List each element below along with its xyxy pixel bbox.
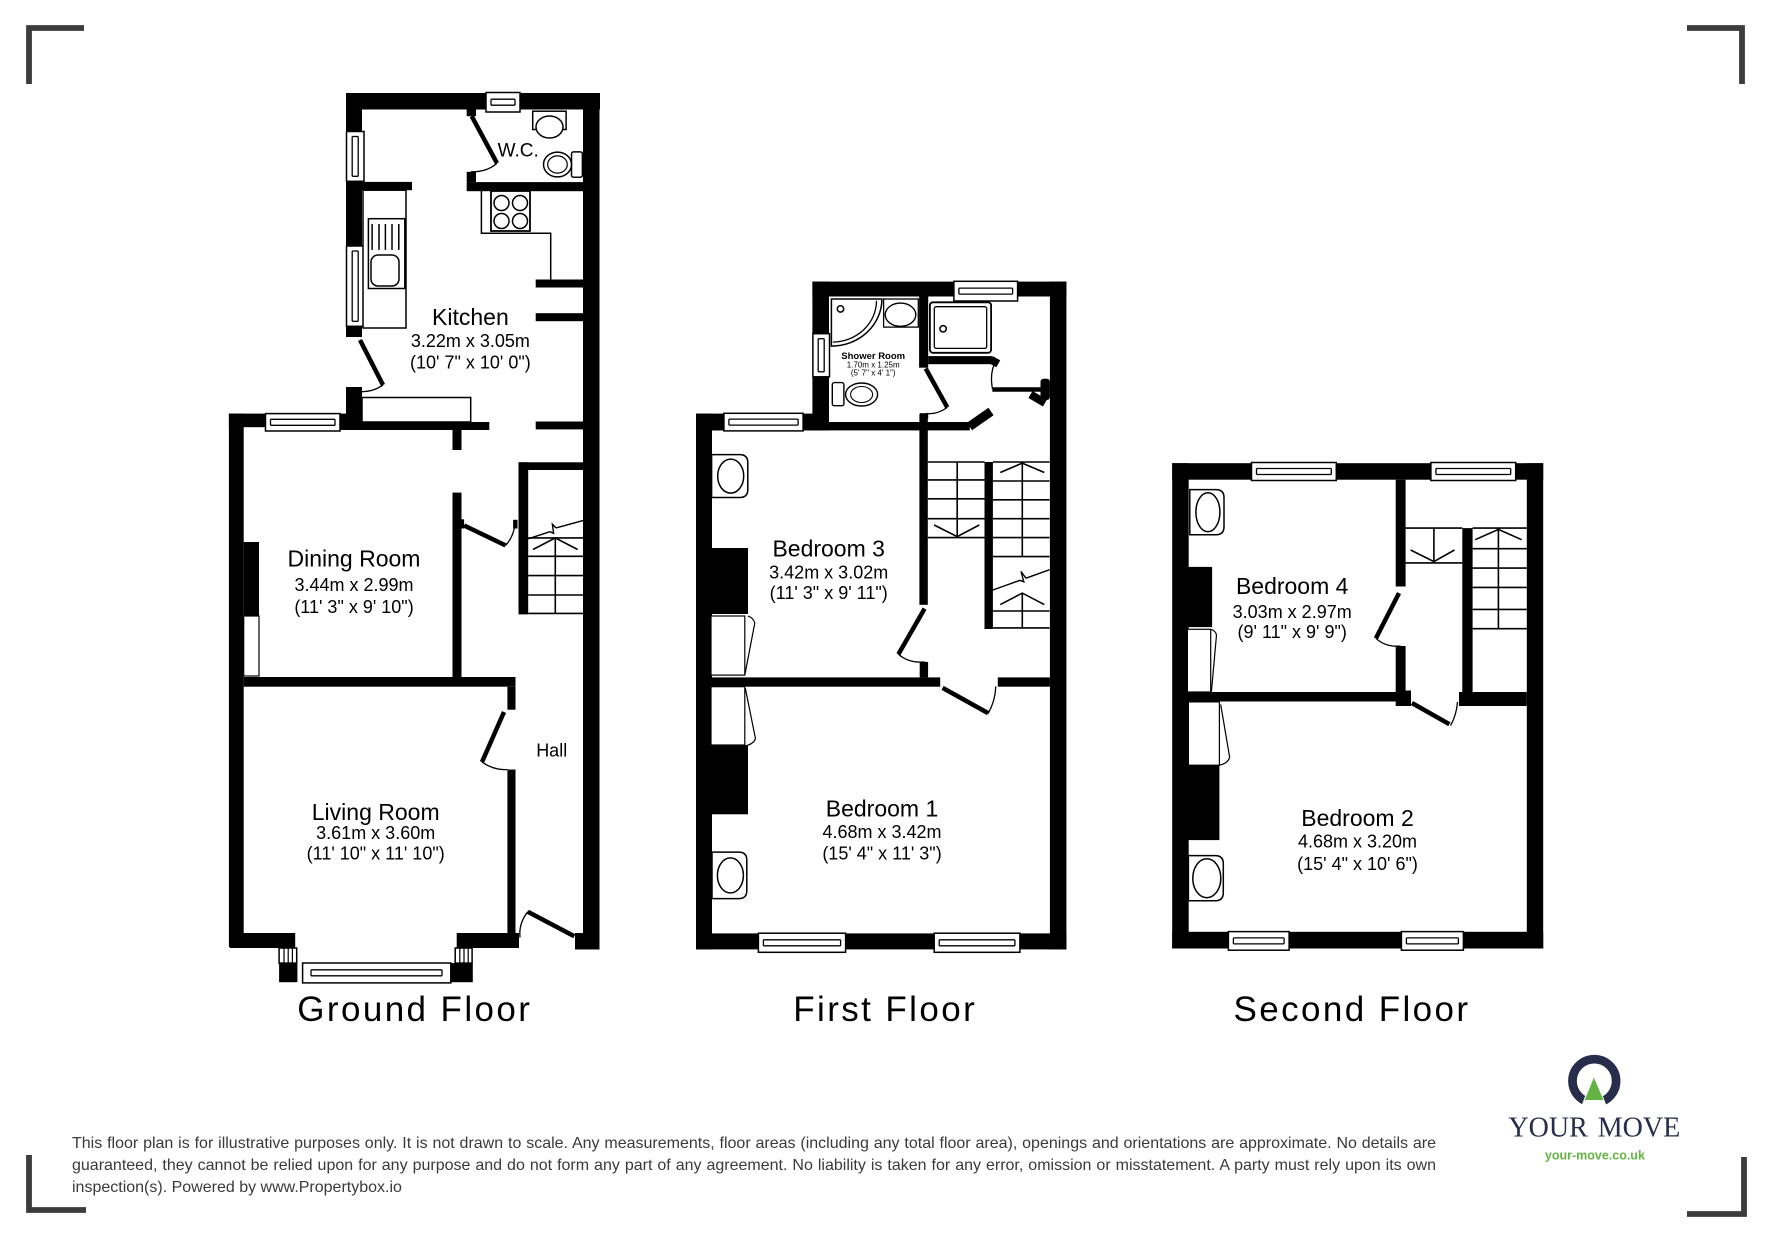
svg-text:YOUR MOVE: YOUR MOVE <box>1508 1113 1680 1144</box>
svg-text:(10' 7" x 10' 0"): (10' 7" x 10' 0") <box>410 352 531 372</box>
svg-text:3.03m x 2.97m: 3.03m x 2.97m <box>1233 602 1352 622</box>
svg-text:Living Room: Living Room <box>312 799 440 825</box>
svg-text:Bedroom 2: Bedroom 2 <box>1301 805 1414 831</box>
svg-text:Dining Room: Dining Room <box>288 546 421 572</box>
svg-text:W.C.: W.C. <box>498 140 539 161</box>
svg-text:Bedroom 1: Bedroom 1 <box>826 795 939 821</box>
svg-text:3.44m x 2.99m: 3.44m x 2.99m <box>294 575 413 595</box>
svg-text:Kitchen: Kitchen <box>432 304 509 330</box>
svg-text:4.68m x 3.42m: 4.68m x 3.42m <box>822 822 941 842</box>
svg-text:Hall: Hall <box>536 741 567 761</box>
svg-text:4.68m x 3.20m: 4.68m x 3.20m <box>1298 832 1417 852</box>
svg-text:Bedroom 3: Bedroom 3 <box>772 536 885 562</box>
svg-text:your-move.co.uk: your-move.co.uk <box>1545 1149 1645 1163</box>
svg-text:(11' 3" x 9' 10"): (11' 3" x 9' 10") <box>294 597 413 617</box>
svg-text:3.61m x 3.60m: 3.61m x 3.60m <box>316 823 435 843</box>
svg-text:(9' 11" x 9' 9"): (9' 11" x 9' 9") <box>1238 622 1347 642</box>
svg-text:Ground Floor: Ground Floor <box>297 990 532 1029</box>
svg-text:First Floor: First Floor <box>793 990 977 1029</box>
svg-text:(15' 4" x 11' 3"): (15' 4" x 11' 3") <box>822 844 941 864</box>
svg-text:3.42m x 3.02m: 3.42m x 3.02m <box>769 563 888 583</box>
svg-text:(11' 3" x 9' 11"): (11' 3" x 9' 11") <box>770 583 888 603</box>
svg-text:(15' 4" x 10' 6"): (15' 4" x 10' 6") <box>1297 854 1418 874</box>
svg-text:Second Floor: Second Floor <box>1234 990 1471 1029</box>
svg-text:Bedroom 4: Bedroom 4 <box>1236 573 1349 599</box>
svg-text:(11' 10" x 11' 10"): (11' 10" x 11' 10") <box>307 843 445 863</box>
svg-text:(5' 7" x 4' 1"): (5' 7" x 4' 1") <box>851 368 896 377</box>
svg-text:3.22m x 3.05m: 3.22m x 3.05m <box>411 331 530 351</box>
